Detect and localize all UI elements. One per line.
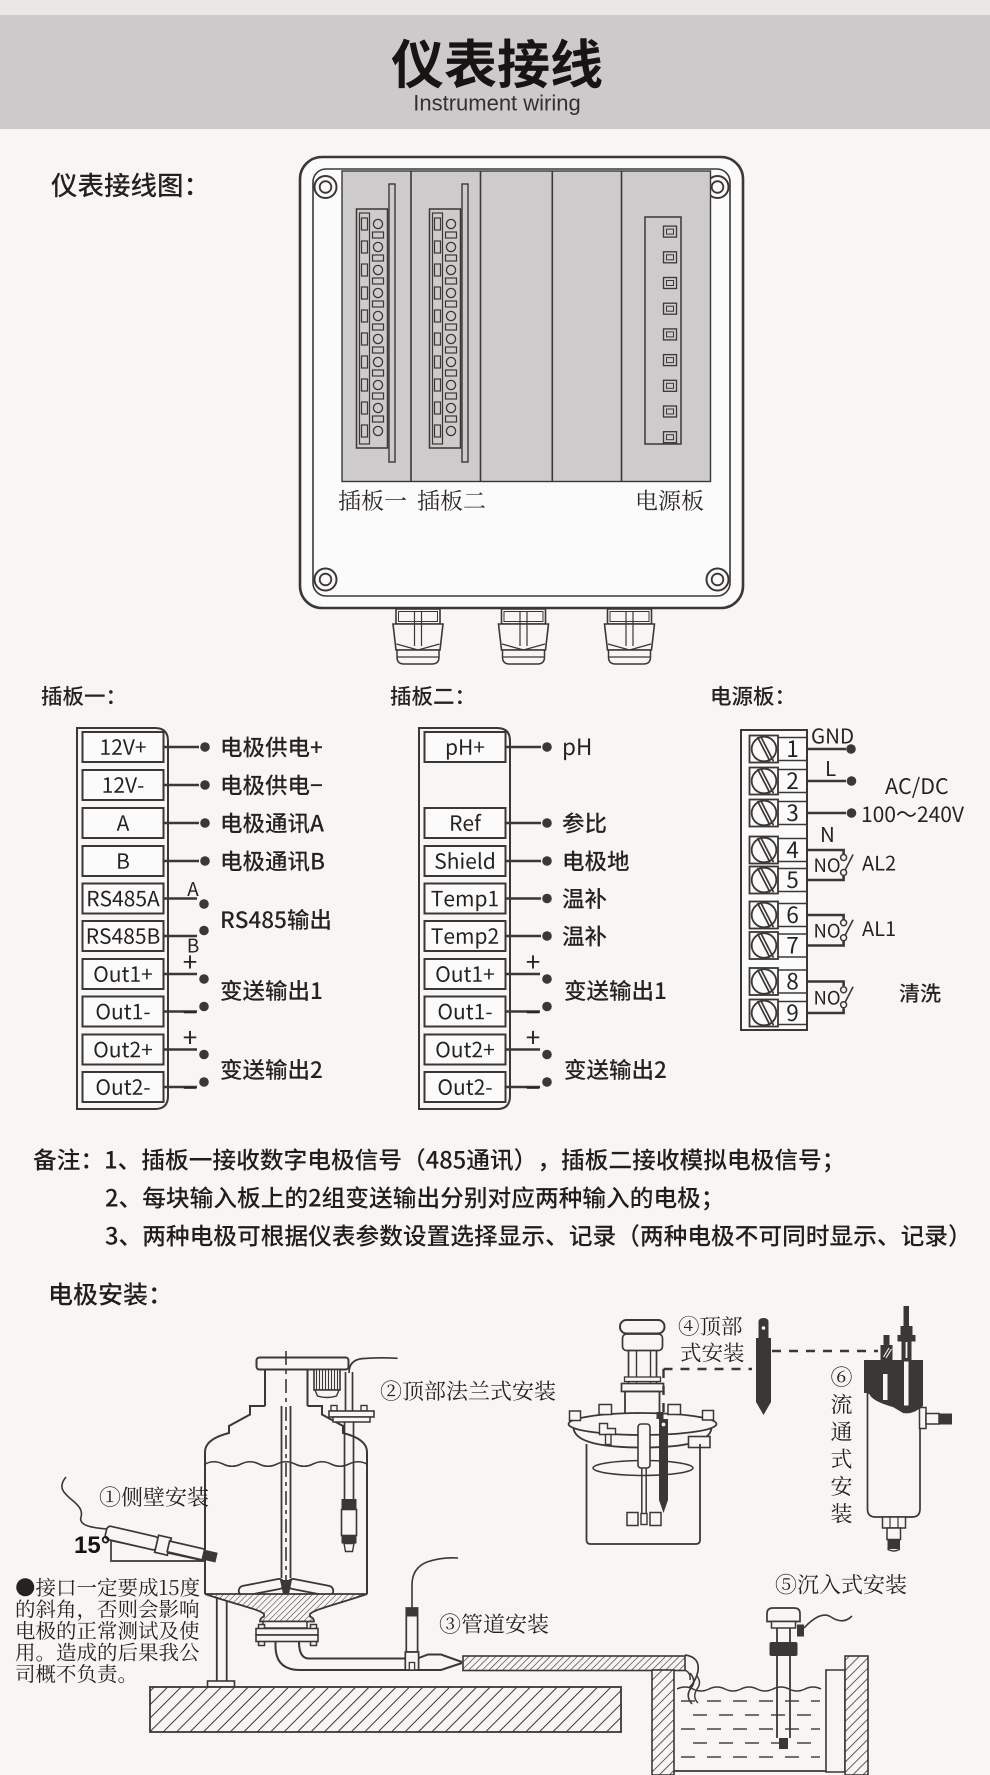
svg-text:Instrument wiring: Instrument wiring: [413, 91, 581, 116]
svg-text:15°: 15°: [74, 1532, 110, 1559]
